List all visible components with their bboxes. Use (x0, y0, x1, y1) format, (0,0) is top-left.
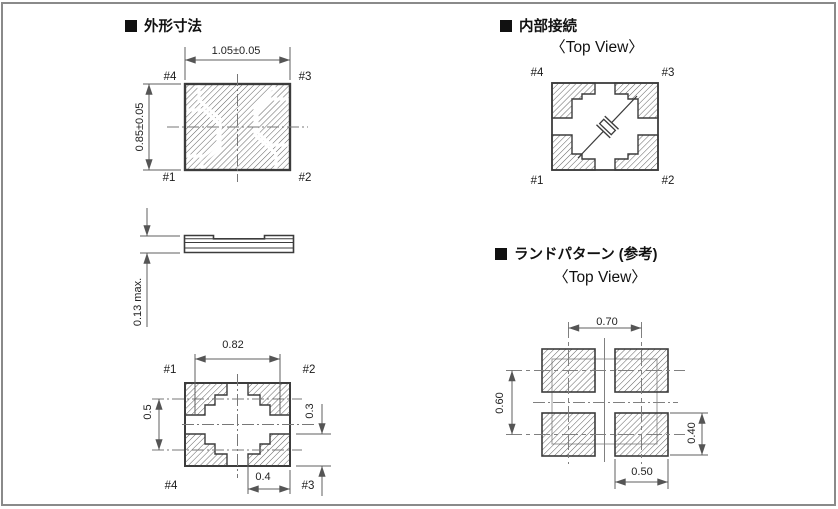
dimension-lines (140, 208, 180, 327)
pin-label-internal-2: #2 (662, 175, 675, 187)
section-title-outline: 外形寸法 (125, 15, 202, 36)
section-title-land: ランドパターン (参考) (495, 243, 657, 264)
dim-land-pitch-y: 0.60 (494, 392, 506, 413)
section-title-internal-text: 内部接続 (519, 15, 577, 36)
pin-label-topview-1: #1 (163, 172, 176, 184)
pin-label-bottomview-2: #2 (303, 364, 316, 376)
dim-land-pitch-x: 0.70 (596, 316, 617, 328)
section-title-land-text: ランドパターン (参考) (514, 243, 657, 264)
dim-bottom-pad-height: 0.3 (304, 403, 316, 418)
pin-label-bottomview-3: #3 (302, 480, 315, 492)
dim-bottom-pitch-y: 0.5 (142, 404, 154, 419)
pin-label-internal-4: #4 (531, 67, 544, 79)
technical-drawing-layer (0, 0, 838, 509)
internal-top-view-label: 〈Top View〉 (550, 35, 644, 57)
land-pattern-drawing (506, 322, 708, 489)
dim-land-pad-width: 0.50 (631, 466, 652, 478)
outline-side-view-drawing (140, 208, 294, 327)
internal-connection-drawing (552, 83, 658, 170)
dim-outline-width: 1.05±0.05 (212, 45, 261, 57)
pin-label-topview-2: #2 (299, 172, 312, 184)
outline-top-view-drawing (143, 47, 308, 182)
pin-label-bottomview-1: #1 (164, 364, 177, 376)
datasheet-drawing-page: 外形寸法 内部接続 ランドパターン (参考) 〈Top View〉 〈Top V… (0, 0, 838, 509)
pin-label-topview-4: #4 (164, 71, 177, 83)
pin-label-topview-3: #3 (299, 71, 312, 83)
section-square-marker (125, 20, 137, 32)
section-title-outline-text: 外形寸法 (144, 15, 202, 36)
pin-label-internal-3: #3 (662, 67, 675, 79)
pin-label-bottomview-4: #4 (165, 480, 178, 492)
pin-label-internal-1: #1 (531, 175, 544, 187)
dim-outline-height: 0.85±0.05 (134, 103, 146, 152)
dim-bottom-pitch-x: 0.82 (222, 339, 243, 351)
section-title-internal: 内部接続 (500, 15, 577, 36)
dim-land-pad-height: 0.40 (686, 422, 698, 443)
dim-side-thickness: 0.13 max. (132, 278, 144, 326)
section-square-marker (500, 20, 512, 32)
section-square-marker (495, 248, 507, 260)
land-top-view-label: 〈Top View〉 (553, 265, 647, 287)
dim-bottom-pad-width: 0.4 (255, 471, 270, 483)
